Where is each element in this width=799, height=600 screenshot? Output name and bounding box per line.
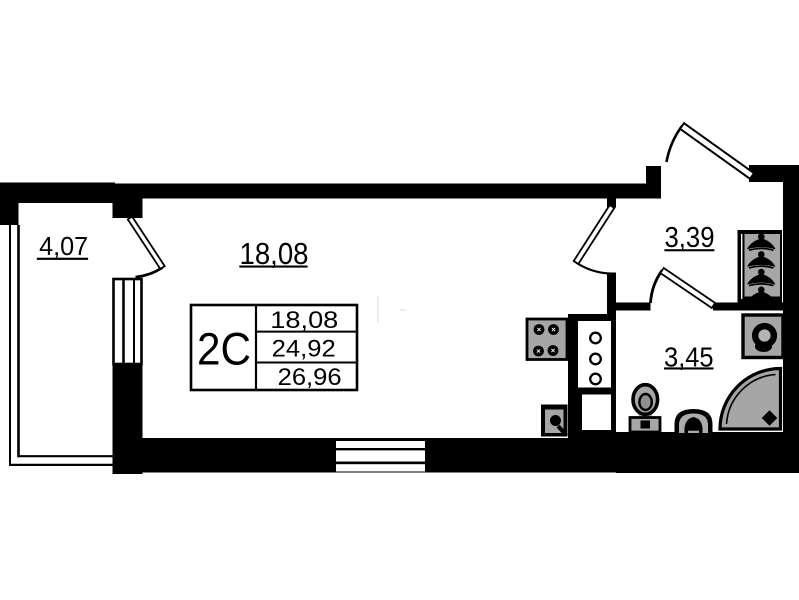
svg-text:2С: 2С: [197, 324, 251, 375]
svg-text:18,08: 18,08: [270, 307, 338, 334]
svg-text:26,96: 26,96: [278, 364, 342, 391]
svg-text:4,07: 4,07: [39, 231, 88, 261]
svg-text:24,92: 24,92: [272, 336, 336, 363]
